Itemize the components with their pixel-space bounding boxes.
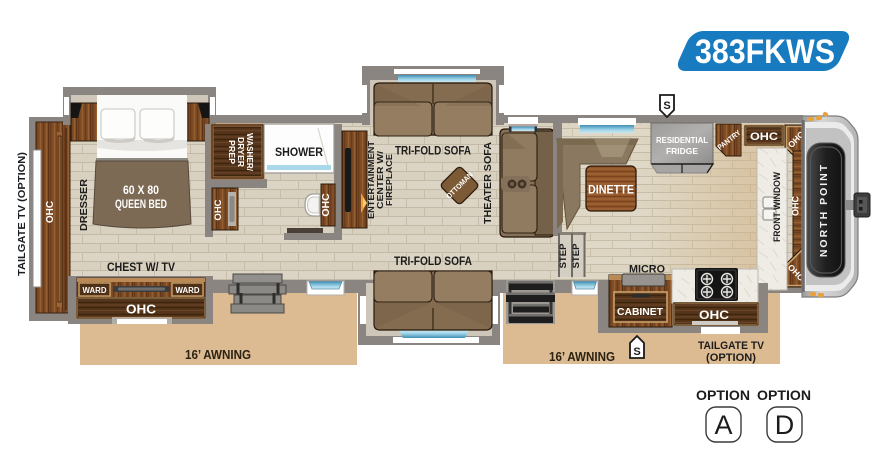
svg-text:TRI-FOLD SOFA: TRI-FOLD SOFA xyxy=(395,146,471,158)
svg-text:S: S xyxy=(663,100,670,112)
svg-text:383FKWS: 383FKWS xyxy=(695,33,835,71)
svg-text:CHEST W/ TV: CHEST W/ TV xyxy=(107,262,175,274)
svg-text:16’ AWNING: 16’ AWNING xyxy=(549,350,615,364)
svg-text:(OPTION): (OPTION) xyxy=(706,352,756,364)
svg-text:A: A xyxy=(714,410,732,440)
svg-text:THEATER SOFA: THEATER SOFA xyxy=(482,142,494,224)
svg-text:RESIDENTIAL: RESIDENTIAL xyxy=(656,135,708,145)
svg-text:FRONT WINDOW: FRONT WINDOW xyxy=(772,172,782,242)
svg-text:TRI-FOLD SOFA: TRI-FOLD SOFA xyxy=(394,256,472,268)
svg-text:STEP: STEP xyxy=(558,243,569,268)
svg-text:CABINET: CABINET xyxy=(617,306,664,318)
svg-text:QUEEN BED: QUEEN BED xyxy=(115,199,167,211)
svg-text:ENTERTAINMENT: ENTERTAINMENT xyxy=(367,141,376,219)
svg-text:OPTION: OPTION xyxy=(696,388,750,403)
svg-text:WARD: WARD xyxy=(83,286,107,295)
svg-text:OHC: OHC xyxy=(45,201,56,223)
svg-text:OPTION: OPTION xyxy=(757,388,811,403)
svg-text:PREP: PREP xyxy=(227,140,237,164)
svg-text:SHOWER: SHOWER xyxy=(275,145,323,159)
svg-text:S: S xyxy=(633,346,640,358)
svg-text:NORTH POINT: NORTH POINT xyxy=(818,163,830,257)
svg-text:TAILGATE TV: TAILGATE TV xyxy=(698,340,765,352)
svg-text:OHC: OHC xyxy=(213,199,224,220)
svg-text:FRIDGE: FRIDGE xyxy=(666,146,698,156)
svg-text:OHC: OHC xyxy=(791,196,801,217)
svg-text:16’ AWNING: 16’ AWNING xyxy=(185,348,251,362)
svg-text:OHC: OHC xyxy=(699,310,729,322)
svg-text:OHC: OHC xyxy=(320,193,332,217)
svg-text:CENTER W/: CENTER W/ xyxy=(376,150,385,209)
svg-text:STEP: STEP xyxy=(571,243,582,268)
svg-text:WARD: WARD xyxy=(176,286,200,295)
svg-text:DINETTE: DINETTE xyxy=(588,185,634,197)
svg-text:D: D xyxy=(775,410,795,440)
svg-text:OHC: OHC xyxy=(126,303,156,317)
svg-text:FIREPLACE: FIREPLACE xyxy=(385,153,394,206)
svg-text:OHC: OHC xyxy=(750,131,778,143)
svg-text:TAILGATE TV (OPTION): TAILGATE TV (OPTION) xyxy=(16,152,28,276)
svg-text:DRESSER: DRESSER xyxy=(78,179,90,231)
svg-text:60 X 80: 60 X 80 xyxy=(123,185,159,197)
